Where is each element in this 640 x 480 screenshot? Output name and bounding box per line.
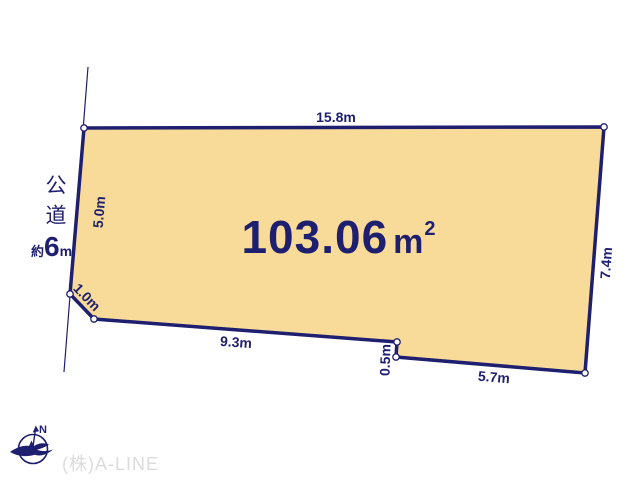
plot-area-label: 103.06 m 2 xyxy=(241,210,434,264)
vertex-marker xyxy=(91,316,97,322)
vertex-marker xyxy=(394,339,400,345)
vertex-marker xyxy=(601,124,607,130)
dimension-left: 5.0m xyxy=(90,195,109,228)
vertex-marker xyxy=(393,354,399,360)
dimension-notch: 0.5m xyxy=(376,344,393,376)
road-width-label: 約 6 m xyxy=(31,231,72,263)
road-name-label: 公道 xyxy=(44,174,65,234)
dimension-top: 15.8m xyxy=(316,109,356,125)
vertex-marker xyxy=(582,370,588,376)
compass-icon: N xyxy=(8,421,60,473)
land-plot-diagram: 15.8m 5.0m 1.0m 9.3m 0.5m 5.7m 7.4m 103.… xyxy=(0,0,640,480)
plot-area-unit: m xyxy=(393,223,423,262)
compass-north-label: N xyxy=(39,424,47,436)
company-watermark: (株)A-LINE xyxy=(62,450,159,476)
dimension-right: 7.4m xyxy=(597,247,615,280)
road-width-value: 6 xyxy=(44,231,60,263)
plot-area-value: 103.06 xyxy=(241,210,388,264)
road-width-unit: m xyxy=(60,243,72,259)
plot-area-unit-exponent: 2 xyxy=(424,218,435,241)
dimension-bottom-right: 5.7m xyxy=(477,368,510,387)
road-width-prefix: 約 xyxy=(31,241,44,260)
dimension-bottom-left: 9.3m xyxy=(220,333,253,351)
vertex-marker xyxy=(81,125,87,131)
